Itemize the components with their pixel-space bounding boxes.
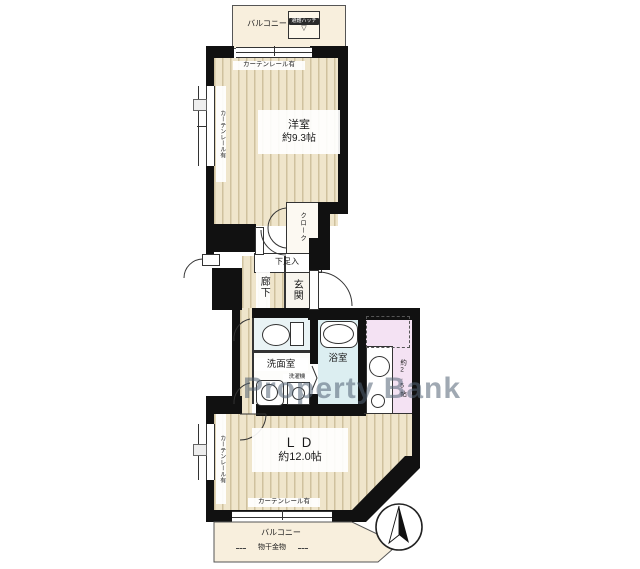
bathtub-inner — [323, 324, 354, 344]
entrance-door-leaf — [309, 270, 319, 310]
wall-segment — [206, 478, 214, 514]
living-dining-name: ＬＤ — [284, 435, 316, 451]
laundry-pole-label: 物干金物 — [250, 543, 294, 553]
balcony-bottom-label: バルコニー — [252, 527, 310, 538]
refrigerator-space — [366, 316, 410, 348]
entrance-door-arc — [318, 272, 352, 306]
room-door-leaf — [255, 227, 264, 255]
laundry-pole-dash — [236, 548, 246, 549]
toilet-bowl-icon — [262, 324, 290, 346]
window — [236, 47, 312, 58]
wall-segment — [212, 268, 242, 310]
hallway-label: 廊下 — [256, 266, 270, 308]
evacuation-hatch-label: 避難ハッチ — [289, 18, 318, 26]
closet-label: クローク — [296, 206, 307, 248]
partition-line — [252, 350, 310, 353]
wall-segment — [206, 396, 214, 426]
living-dining-label: ＬＤ 約12.0帖 — [252, 428, 348, 472]
side-door-arc — [184, 259, 203, 278]
entrance-label: 玄関 — [289, 272, 303, 308]
hatch-symbol-icon: ▽ — [301, 25, 306, 32]
wall-segment — [206, 56, 214, 88]
wall-segment — [310, 320, 318, 364]
wall-segment — [206, 164, 214, 256]
closet-door-arc — [268, 228, 286, 248]
curtain-rail-left-upper: カーテンレール有 — [216, 86, 226, 182]
western-room-label: 洋室 約9.3帖 — [258, 110, 340, 154]
western-room-size: 約9.3帖 — [282, 133, 316, 146]
toilet-tank — [290, 322, 304, 346]
living-dining-size: 約12.0帖 — [278, 451, 321, 465]
window-latch-icon — [193, 99, 207, 111]
evacuation-hatch: 避難ハッチ ▽ — [288, 11, 320, 39]
floor-plan: バルコニー 避難ハッチ ▽ — [0, 0, 640, 569]
washroom-label: 洗面室 — [254, 358, 308, 371]
western-room-name: 洋室 — [288, 119, 310, 133]
window-latch-icon — [193, 444, 207, 456]
side-door-leaf — [202, 254, 220, 266]
wall-segment — [214, 396, 242, 414]
western-room-door-arc — [261, 230, 286, 255]
curtain-rail-left-lower: カーテンレール有 — [216, 414, 226, 504]
wall-segment — [214, 224, 256, 252]
watermark: Property Bank — [243, 372, 461, 406]
laundry-pole-dash — [298, 548, 308, 549]
north-compass-icon — [376, 504, 422, 550]
shoe-cabinet-label: 下足入 — [256, 255, 318, 268]
window — [198, 86, 215, 166]
curtain-rail-top: カーテンレール有 — [233, 61, 305, 70]
window — [232, 511, 332, 523]
curtain-rail-bottom: カーテンレール有 — [248, 498, 320, 507]
wall-segment — [318, 202, 330, 242]
bathroom-label: 浴室 — [322, 352, 354, 365]
wall-segment — [252, 308, 310, 318]
